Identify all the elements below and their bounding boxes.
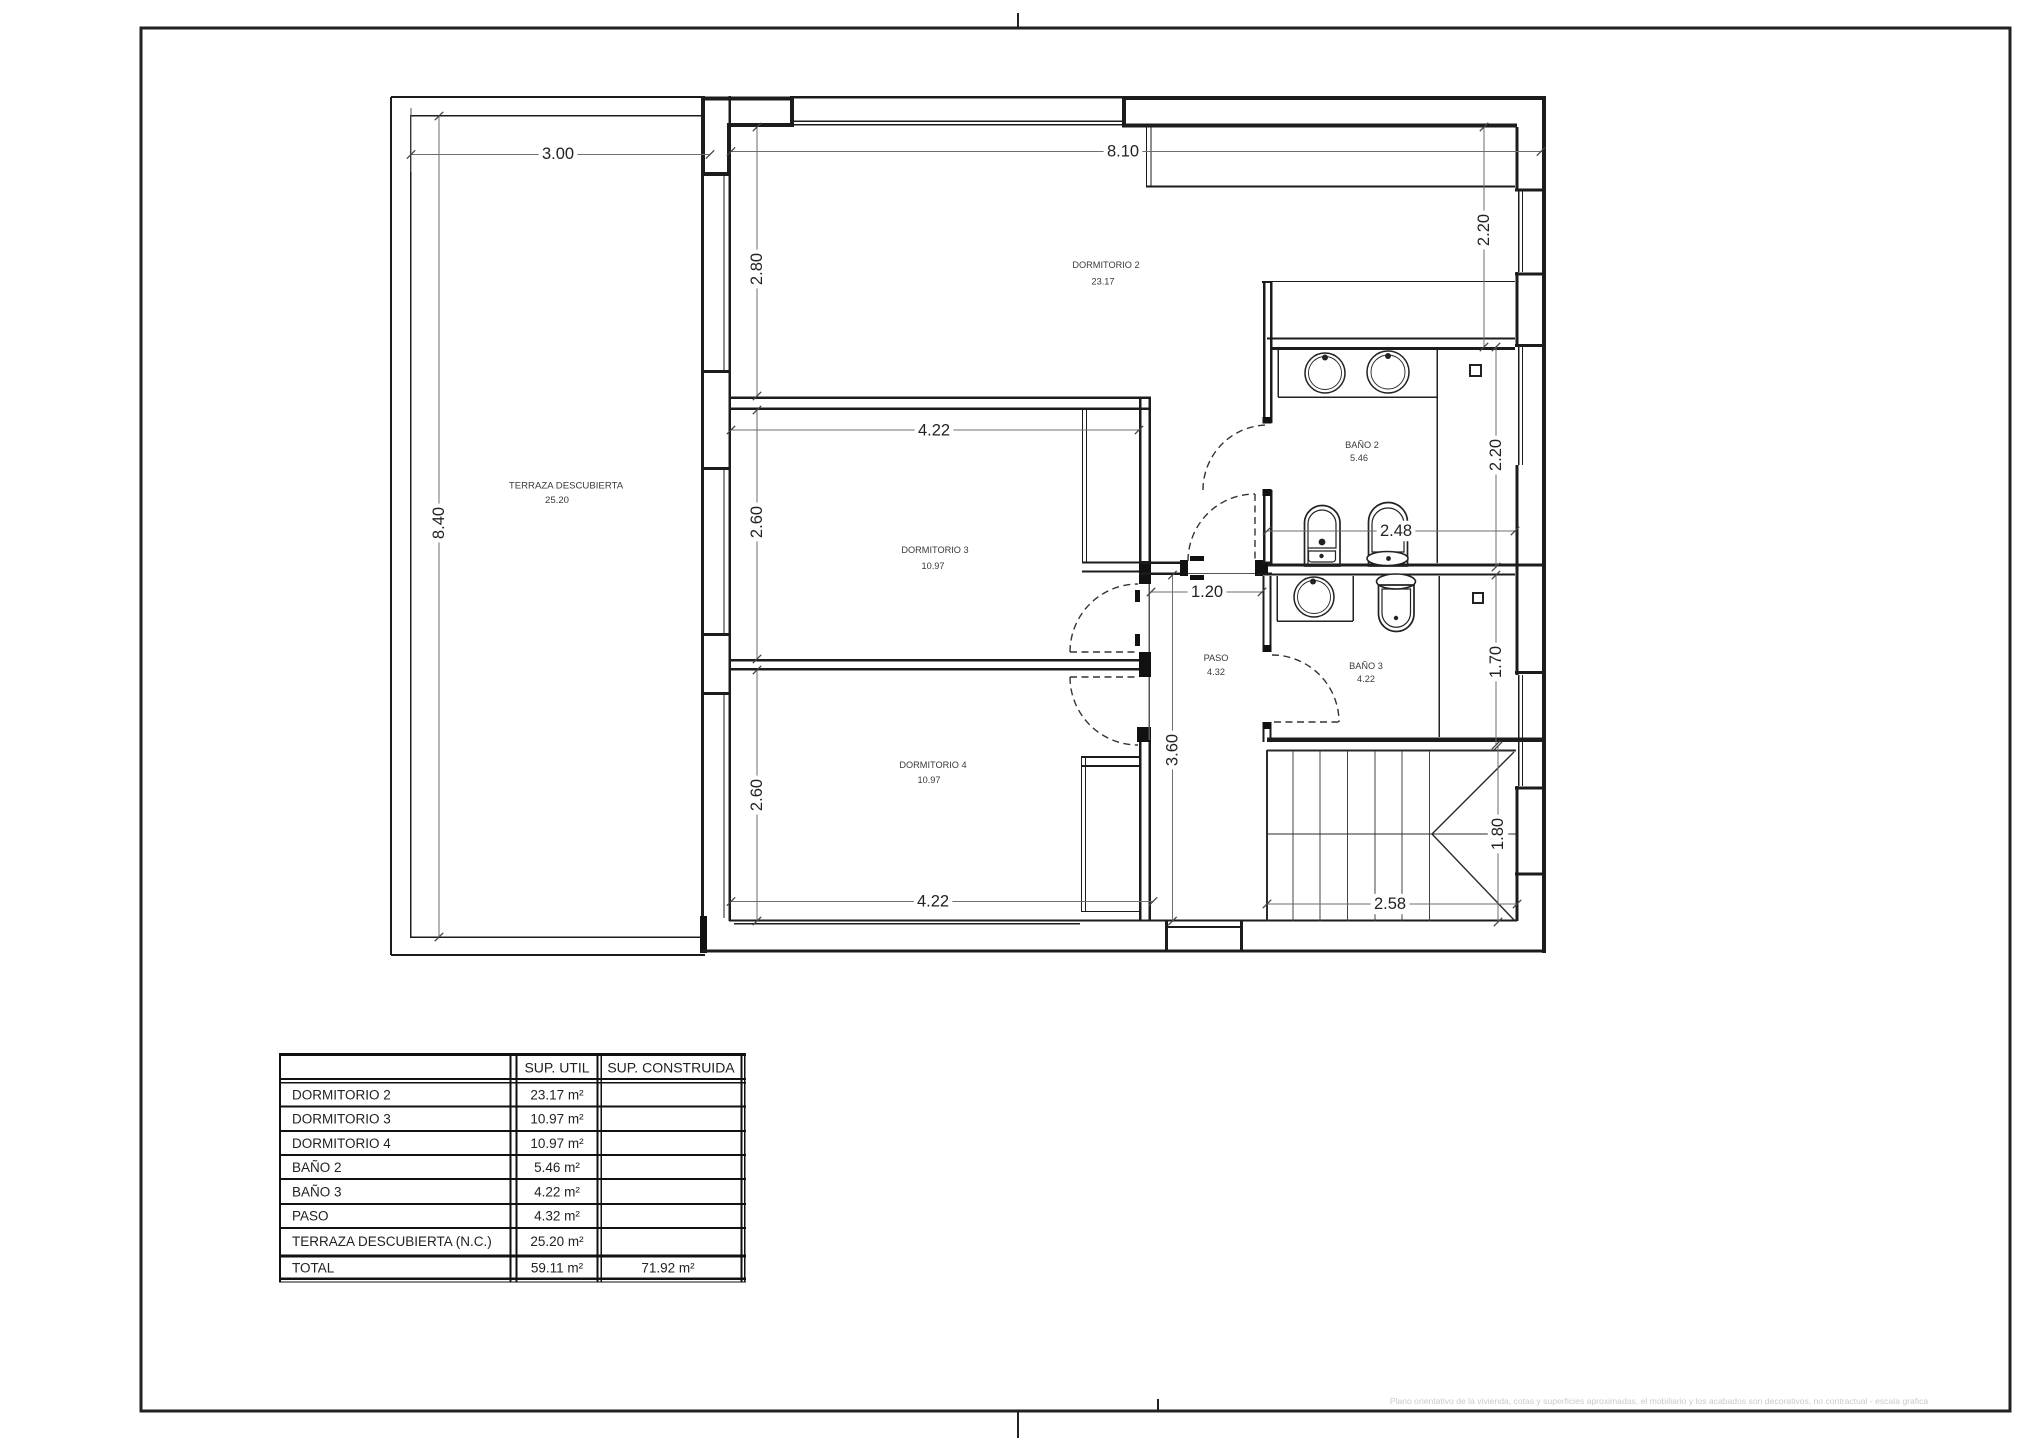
svg-text:4.32: 4.32 bbox=[1207, 667, 1225, 677]
svg-text:3.00: 3.00 bbox=[542, 145, 574, 163]
svg-text:2.60: 2.60 bbox=[748, 506, 766, 538]
svg-text:10.97 m²: 10.97 m² bbox=[530, 1136, 584, 1151]
svg-text:5.46 m²: 5.46 m² bbox=[534, 1160, 580, 1175]
svg-text:DORMITORIO 4: DORMITORIO 4 bbox=[292, 1136, 391, 1151]
svg-text:8.40: 8.40 bbox=[430, 507, 448, 539]
svg-text:DORMITORIO 3: DORMITORIO 3 bbox=[901, 545, 968, 555]
svg-text:4.22 m²: 4.22 m² bbox=[534, 1184, 580, 1199]
svg-text:Plano orientativo de la vivien: Plano orientativo de la vivienda, cotas … bbox=[1390, 1396, 1929, 1406]
svg-text:4.22: 4.22 bbox=[918, 422, 950, 440]
svg-text:TOTAL: TOTAL bbox=[292, 1261, 335, 1276]
svg-text:TERRAZA DESCUBIERTA (N.C.): TERRAZA DESCUBIERTA (N.C.) bbox=[292, 1234, 492, 1249]
svg-text:BAÑO 3: BAÑO 3 bbox=[292, 1184, 342, 1199]
svg-text:1.80: 1.80 bbox=[1489, 818, 1507, 850]
svg-text:PASO: PASO bbox=[1204, 653, 1229, 663]
svg-text:10.97 m²: 10.97 m² bbox=[530, 1112, 584, 1127]
svg-text:5.46: 5.46 bbox=[1350, 453, 1368, 463]
svg-text:DORMITORIO 3: DORMITORIO 3 bbox=[292, 1112, 391, 1127]
svg-text:BAÑO 2: BAÑO 2 bbox=[1345, 440, 1379, 450]
svg-text:71.92 m²: 71.92 m² bbox=[641, 1261, 695, 1276]
svg-text:4.22: 4.22 bbox=[917, 893, 949, 911]
svg-text:59.11 m²: 59.11 m² bbox=[531, 1261, 584, 1276]
svg-text:4.32 m²: 4.32 m² bbox=[534, 1209, 580, 1224]
svg-text:2.58: 2.58 bbox=[1374, 895, 1406, 913]
svg-text:1.20: 1.20 bbox=[1191, 583, 1223, 601]
svg-text:10.97: 10.97 bbox=[922, 561, 945, 571]
svg-text:SUP. UTIL: SUP. UTIL bbox=[524, 1060, 589, 1076]
svg-text:2.20: 2.20 bbox=[1475, 214, 1493, 246]
svg-text:1.70: 1.70 bbox=[1487, 646, 1505, 678]
svg-text:2.80: 2.80 bbox=[748, 253, 766, 285]
svg-text:2.60: 2.60 bbox=[748, 779, 766, 811]
svg-text:DORMITORIO 4: DORMITORIO 4 bbox=[899, 760, 966, 770]
svg-text:10.97: 10.97 bbox=[918, 775, 941, 785]
svg-text:BAÑO 2: BAÑO 2 bbox=[292, 1160, 342, 1175]
svg-text:BAÑO 3: BAÑO 3 bbox=[1349, 661, 1383, 671]
svg-text:8.10: 8.10 bbox=[1107, 143, 1139, 161]
svg-text:25.20 m²: 25.20 m² bbox=[530, 1234, 584, 1249]
svg-text:SUP. CONSTRUIDA: SUP. CONSTRUIDA bbox=[607, 1060, 735, 1076]
svg-text:4.22: 4.22 bbox=[1357, 674, 1375, 684]
svg-text:DORMITORIO 2: DORMITORIO 2 bbox=[1072, 260, 1139, 270]
svg-text:DORMITORIO 2: DORMITORIO 2 bbox=[292, 1088, 391, 1103]
svg-text:2.48: 2.48 bbox=[1380, 522, 1412, 540]
svg-text:PASO: PASO bbox=[292, 1209, 329, 1224]
svg-text:23.17: 23.17 bbox=[1092, 277, 1115, 287]
svg-text:25.20: 25.20 bbox=[545, 495, 569, 506]
svg-text:23.17 m²: 23.17 m² bbox=[530, 1088, 584, 1103]
svg-text:TERRAZA DESCUBIERTA: TERRAZA DESCUBIERTA bbox=[509, 481, 624, 492]
svg-text:2.20: 2.20 bbox=[1487, 439, 1505, 471]
svg-text:3.60: 3.60 bbox=[1164, 734, 1182, 766]
